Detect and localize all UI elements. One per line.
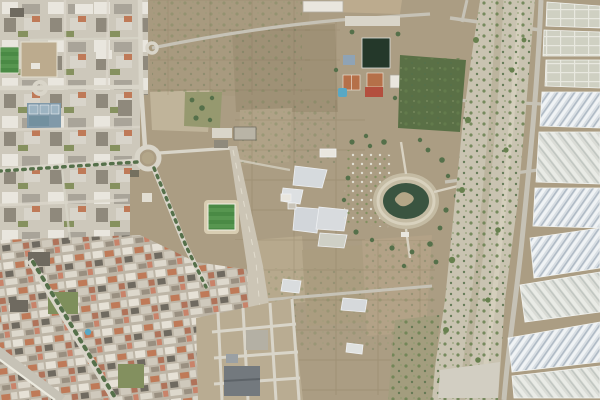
football-field-track <box>204 200 239 234</box>
aerial-map-canvas[interactable] <box>0 0 600 400</box>
aerial-image <box>0 0 600 400</box>
